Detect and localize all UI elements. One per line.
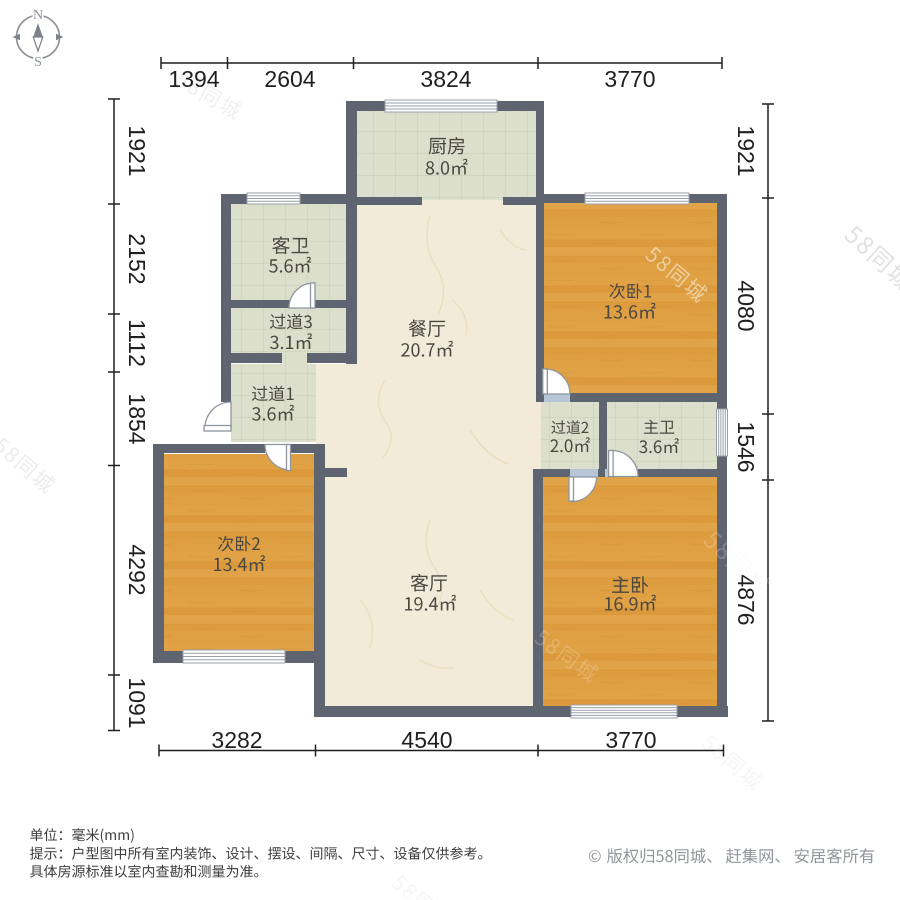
svg-text:S: S — [34, 55, 42, 70]
svg-text:2604: 2604 — [264, 66, 315, 92]
svg-text:2152: 2152 — [124, 233, 150, 284]
svg-text:1921: 1921 — [124, 125, 150, 176]
svg-text:4540: 4540 — [401, 727, 452, 753]
svg-text:3824: 3824 — [420, 66, 471, 92]
svg-text:N: N — [33, 8, 43, 23]
svg-text:1546: 1546 — [733, 421, 759, 472]
svg-text:1112: 1112 — [124, 319, 150, 367]
svg-text:3282: 3282 — [211, 727, 262, 753]
svg-text:3770: 3770 — [605, 727, 656, 753]
svg-text:4292: 4292 — [124, 544, 150, 595]
svg-text:1921: 1921 — [733, 125, 759, 176]
svg-text:3770: 3770 — [604, 66, 655, 92]
svg-text:1854: 1854 — [124, 393, 150, 444]
svg-text:4080: 4080 — [733, 280, 759, 331]
svg-text:1091: 1091 — [124, 677, 150, 728]
